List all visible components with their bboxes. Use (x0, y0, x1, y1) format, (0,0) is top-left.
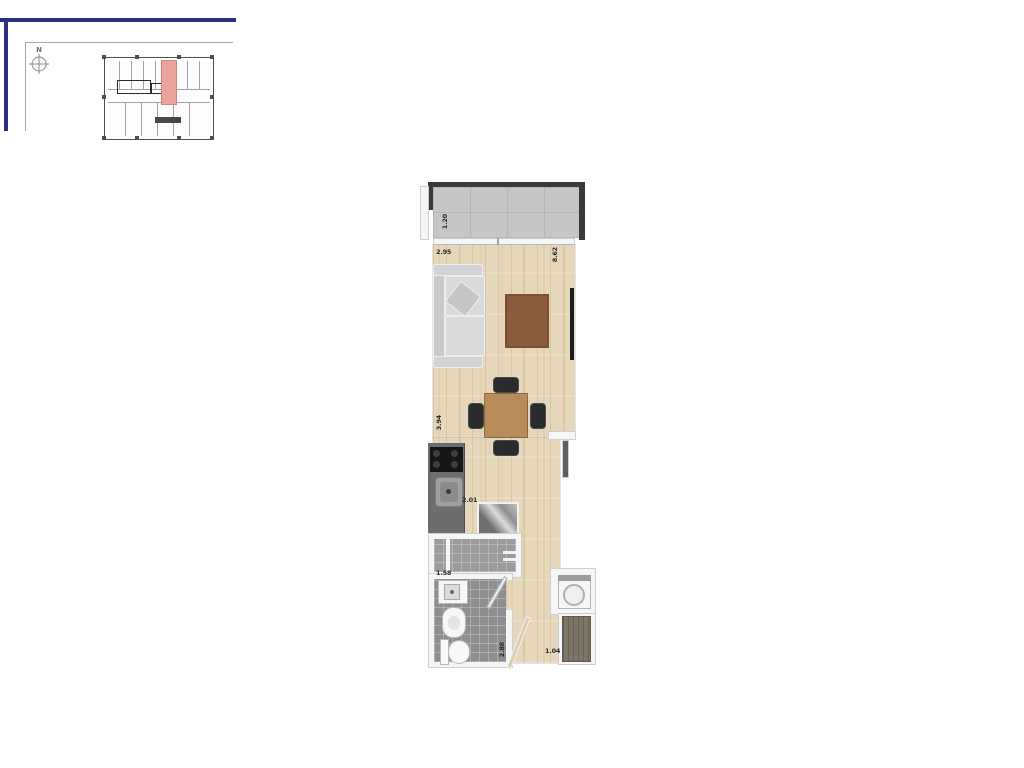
dining-table (484, 393, 528, 438)
dim-bath-width: 1.58 (436, 570, 451, 577)
entry-closet (562, 616, 591, 662)
kitchen-faucet (446, 489, 451, 494)
dim-entry-width: 1.04 (545, 648, 560, 655)
dining-chair-bottom (493, 440, 519, 456)
keyplan-highlighted-unit (161, 60, 177, 105)
frame-inner-left-line (25, 42, 26, 131)
balcony-door-mark (497, 238, 499, 245)
dim-apartment-length: 8.62 (552, 247, 559, 262)
keyplan-tick (102, 95, 106, 99)
balcony-sill (433, 238, 575, 245)
keyplan-tick (102, 136, 106, 140)
keyplan-tick (210, 136, 214, 140)
keyplan-wall (187, 61, 188, 89)
tv (570, 288, 574, 360)
keyplan-tick (135, 136, 139, 140)
bidet-basin (448, 616, 460, 630)
sofa-back (433, 264, 445, 368)
shower-shelf (503, 551, 516, 554)
toilet-bowl (448, 640, 470, 664)
frame-inner-top-line (25, 42, 233, 43)
north-label: N (36, 46, 42, 54)
keyplan-tick (210, 55, 214, 59)
keyplan-tick (177, 136, 181, 140)
sofa-armrest-top (433, 264, 483, 276)
keyplan-wall (199, 61, 200, 89)
dim-balcony-depth: 1.20 (442, 214, 449, 229)
hall-console (562, 440, 569, 478)
shower-shelf (503, 558, 516, 561)
floorplan-sheet: N 1.20 (0, 0, 1024, 768)
keyplan-tick (102, 55, 106, 59)
washing-machine-panel (558, 575, 591, 581)
fridge (477, 502, 519, 537)
burner (433, 461, 440, 468)
keyplan-detail (117, 80, 151, 94)
balcony-wall-right (579, 182, 585, 240)
burner (451, 461, 458, 468)
burner (433, 450, 440, 457)
sofa-seat-cushion (445, 316, 485, 356)
balcony-pillar (420, 186, 429, 240)
dim-dining-length: 3.94 (436, 415, 443, 430)
frame-top-line (0, 18, 236, 22)
keyplan-wall (108, 102, 210, 103)
keyplan-wall (189, 102, 190, 136)
sofa-armrest-bottom (433, 356, 483, 368)
dim-kitchen-width: 2.01 (462, 497, 477, 504)
keyplan-tick (210, 95, 214, 99)
key-plan (104, 57, 214, 140)
shower-partition (446, 539, 450, 572)
burner (451, 450, 458, 457)
dining-chair-left (468, 403, 484, 429)
north-indicator-icon: N (27, 43, 51, 77)
keyplan-wall (125, 102, 126, 136)
keyplan-wall (141, 102, 142, 136)
keyplan-tick (177, 55, 181, 59)
bathroom-door-opening (506, 580, 513, 610)
rug (505, 294, 549, 348)
dining-chair-right (530, 403, 546, 429)
washing-machine-drum (563, 584, 585, 606)
step-wall-stub (548, 431, 576, 440)
vanity-faucet (450, 590, 454, 594)
frame-left-line (4, 18, 8, 131)
balcony-floor (433, 187, 579, 238)
keyplan-tick (135, 55, 139, 59)
dim-living-width: 2.95 (436, 249, 451, 256)
dining-chair-top (493, 377, 519, 393)
dim-hall-length: 2.88 (499, 642, 506, 657)
keyplan-detail (155, 117, 181, 123)
